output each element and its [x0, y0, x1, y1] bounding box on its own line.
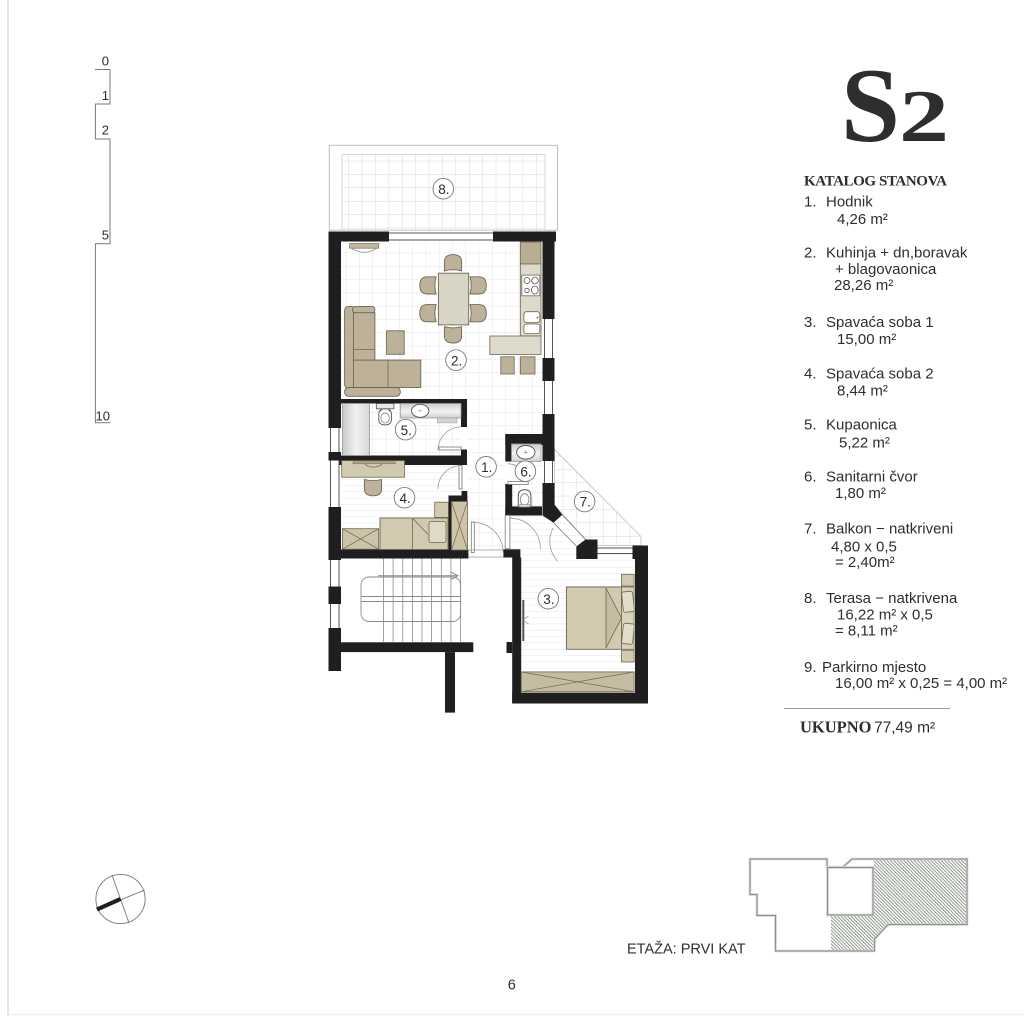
- svg-text:Spavaća soba 1: Spavaća soba 1: [826, 314, 934, 331]
- svg-text:16,22 m² x 0,5: 16,22 m² x 0,5: [837, 607, 933, 624]
- svg-text:Parkirno mjesto: Parkirno mjesto: [822, 659, 926, 676]
- svg-text:1.: 1.: [804, 194, 817, 211]
- svg-text:S: S: [841, 47, 900, 164]
- svg-text:8.: 8.: [804, 590, 817, 607]
- svg-text:4,26 m²: 4,26 m²: [837, 211, 888, 228]
- svg-text:Hodnik: Hodnik: [826, 194, 873, 211]
- svg-text:Spavaća soba 2: Spavaća soba 2: [826, 366, 934, 383]
- svg-text:8,44 m²: 8,44 m²: [837, 383, 888, 400]
- svg-text:1: 1: [102, 88, 109, 103]
- svg-text:Terasa − natkrivena: Terasa − natkrivena: [826, 590, 958, 607]
- svg-text:= 2,40m²: = 2,40m²: [835, 554, 895, 571]
- svg-text:6.: 6.: [804, 469, 817, 486]
- svg-text:UKUPNO: UKUPNO: [800, 718, 872, 737]
- svg-text:Sanitarni čvor: Sanitarni čvor: [826, 469, 918, 486]
- svg-text:1.: 1.: [481, 460, 492, 475]
- svg-text:16,00 m² x 0,25 = 4,00 m²: 16,00 m² x 0,25 = 4,00 m²: [835, 675, 1007, 692]
- svg-text:4.: 4.: [399, 491, 410, 506]
- svg-text:10: 10: [96, 409, 110, 424]
- svg-text:+ blagovaonica: + blagovaonica: [835, 261, 937, 278]
- svg-text:7.: 7.: [580, 495, 591, 510]
- svg-text:9.: 9.: [804, 659, 817, 676]
- svg-text:KATALOG STANOVA: KATALOG STANOVA: [804, 174, 947, 190]
- svg-text:77,49 m²: 77,49 m²: [874, 720, 935, 737]
- svg-text:3.: 3.: [543, 592, 554, 607]
- svg-text:7.: 7.: [804, 521, 817, 538]
- svg-text:5.: 5.: [401, 423, 412, 438]
- svg-text:2.: 2.: [451, 353, 462, 368]
- svg-text:4,80 x 0,5: 4,80 x 0,5: [831, 539, 897, 556]
- svg-text:6: 6: [508, 978, 516, 994]
- svg-text:Balkon − natkriveni: Balkon − natkriveni: [826, 521, 953, 538]
- svg-text:2: 2: [899, 76, 949, 158]
- svg-text:15,00 m²: 15,00 m²: [837, 331, 896, 348]
- svg-text:2.: 2.: [804, 245, 817, 262]
- svg-text:0: 0: [102, 54, 109, 69]
- svg-text:= 8,11 m²: = 8,11 m²: [835, 623, 898, 640]
- svg-text:8.: 8.: [438, 182, 449, 197]
- svg-text:Kuhinja + dn,boravak: Kuhinja + dn,boravak: [826, 245, 968, 262]
- svg-text:Kupaonica: Kupaonica: [826, 417, 898, 434]
- svg-text:5.: 5.: [804, 417, 817, 434]
- svg-text:ETAŽA: PRVI KAT: ETAŽA: PRVI KAT: [627, 941, 746, 958]
- svg-text:5,22 m²: 5,22 m²: [839, 435, 890, 452]
- svg-text:1,80 m²: 1,80 m²: [835, 485, 886, 502]
- svg-text:6.: 6.: [520, 464, 531, 479]
- svg-text:28,26 m²: 28,26 m²: [834, 277, 893, 294]
- svg-text:4.: 4.: [804, 366, 817, 383]
- svg-text:5: 5: [102, 228, 109, 243]
- svg-text:2: 2: [102, 123, 109, 138]
- svg-text:3.: 3.: [804, 314, 817, 331]
